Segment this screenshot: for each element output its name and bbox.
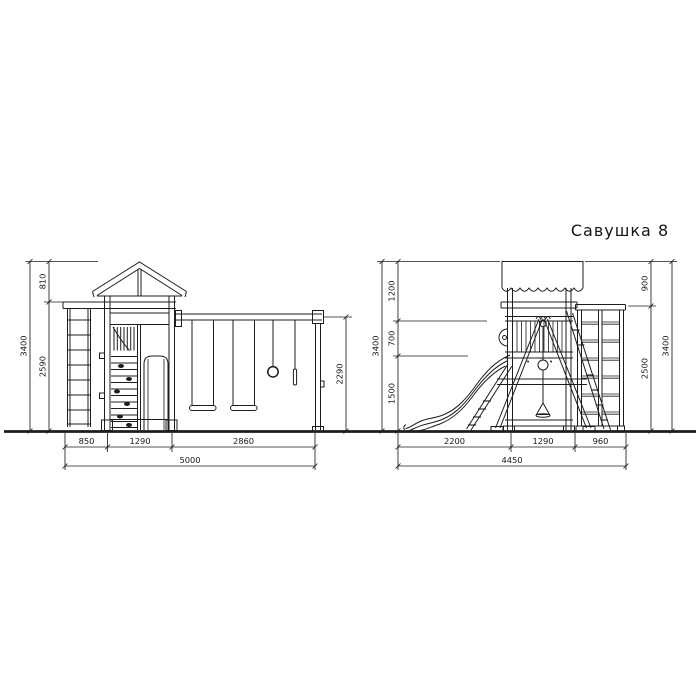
side-view: 3400 1200 700 1500 900 2500 3400 2200 12… bbox=[371, 259, 678, 470]
side-steering-wheel bbox=[499, 329, 508, 346]
drawing-title: Савушка 8 bbox=[571, 221, 669, 240]
dim-side-canopy-clearance: 900 bbox=[640, 276, 650, 292]
dim-side-total-span: 4450 bbox=[501, 455, 522, 465]
front-trapeze bbox=[293, 320, 296, 385]
front-slide-panel bbox=[144, 356, 168, 430]
dim-front-body-height: 2590 bbox=[38, 356, 48, 377]
front-curtain-panel bbox=[113, 327, 134, 351]
dim-front-tower-span: 1290 bbox=[129, 436, 150, 446]
dim-front-total-height: 3400 bbox=[19, 335, 29, 356]
dim-side-canopy-drop: 1200 bbox=[387, 280, 397, 301]
dim-side-railing-drop: 700 bbox=[387, 331, 397, 347]
side-climb-wall bbox=[576, 305, 626, 432]
playground-drawing: Савушка 8 bbox=[0, 0, 700, 700]
front-climb-wall bbox=[111, 357, 138, 428]
side-disc-swing bbox=[536, 327, 550, 418]
dim-side-climb-wall-height: 2500 bbox=[640, 358, 650, 379]
front-rope-ladder bbox=[68, 309, 91, 428]
front-swing-1 bbox=[190, 320, 217, 411]
front-swing-2 bbox=[231, 320, 258, 411]
front-ladder-beam bbox=[63, 302, 176, 309]
front-roof bbox=[93, 262, 187, 297]
side-slide bbox=[404, 355, 510, 431]
dim-front-ladder-span: 850 bbox=[79, 436, 95, 446]
dim-front-swing-span: 2860 bbox=[233, 436, 254, 446]
dim-side-climb-wall-span: 960 bbox=[593, 436, 609, 446]
dim-front-roof-height: 810 bbox=[38, 274, 48, 290]
front-end-post bbox=[313, 324, 325, 432]
dim-side-deck-height: 1500 bbox=[387, 383, 397, 404]
side-canopy bbox=[502, 262, 583, 292]
front-swing-beam bbox=[175, 311, 324, 327]
front-view: 3400 810 2590 2290 850 1290 2860 5000 bbox=[19, 259, 353, 470]
dim-side-tower-span: 1290 bbox=[532, 436, 553, 446]
front-gym-ring bbox=[268, 320, 278, 377]
dim-side-slide-span: 2200 bbox=[444, 436, 465, 446]
dim-side-total-height: 3400 bbox=[371, 335, 381, 356]
blueprint-page: Савушка 8 bbox=[0, 0, 700, 700]
dim-front-total-span: 5000 bbox=[179, 455, 200, 465]
dim-side-total-height-right: 3400 bbox=[661, 335, 671, 356]
dim-front-swing-beam-height: 2290 bbox=[335, 363, 345, 384]
